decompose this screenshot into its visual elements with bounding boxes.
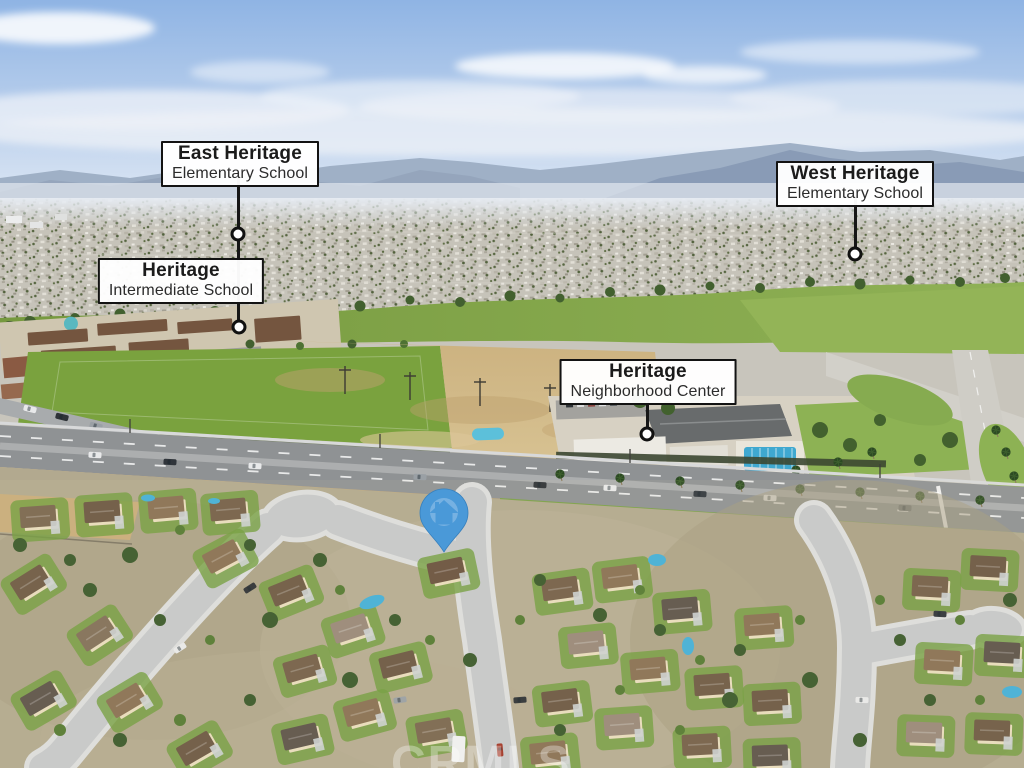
- location-dot-heritage-intermediate: [232, 320, 247, 335]
- label-title: East Heritage: [172, 144, 308, 165]
- map-label-heritage-intermediate: Heritage Intermediate School: [98, 258, 264, 304]
- location-dot-west-heritage: [848, 247, 863, 262]
- property-location-pin: [413, 483, 475, 557]
- label-title: Heritage: [571, 362, 726, 383]
- label-connector-line-east-intermediate: [237, 178, 240, 329]
- mls-watermark: CRMLS: [391, 736, 572, 768]
- label-title: Heritage: [109, 261, 253, 282]
- aerial-listing-photo: East Heritage Elementary School Heritage…: [0, 0, 1024, 768]
- location-dot-east-heritage: [231, 227, 246, 242]
- label-subtitle: Intermediate School: [109, 282, 253, 300]
- map-label-west-heritage-elementary: West Heritage Elementary School: [776, 161, 934, 207]
- light-wash: [0, 480, 1024, 768]
- label-subtitle: Elementary School: [787, 185, 923, 203]
- aerial-scene: [0, 0, 1024, 768]
- map-label-heritage-neighborhood-center: Heritage Neighborhood Center: [560, 359, 737, 405]
- label-title: West Heritage: [787, 164, 923, 185]
- location-dot-neighborhood-center: [640, 427, 655, 442]
- map-label-east-heritage-elementary: East Heritage Elementary School: [161, 141, 319, 187]
- label-subtitle: Elementary School: [172, 165, 308, 183]
- label-subtitle: Neighborhood Center: [571, 383, 726, 401]
